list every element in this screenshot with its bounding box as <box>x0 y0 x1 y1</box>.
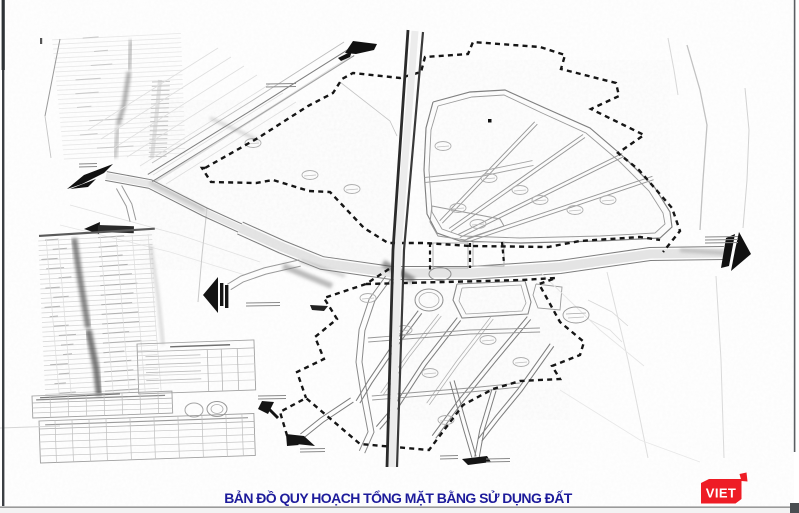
svg-text:BẢN ĐỒ QUY HOẠCH TỔNG MẶT BẰNG: BẢN ĐỒ QUY HOẠCH TỔNG MẶT BẰNG SỬ DỤNG Đ… <box>224 489 573 506</box>
svg-text:VIET: VIET <box>706 486 737 501</box>
